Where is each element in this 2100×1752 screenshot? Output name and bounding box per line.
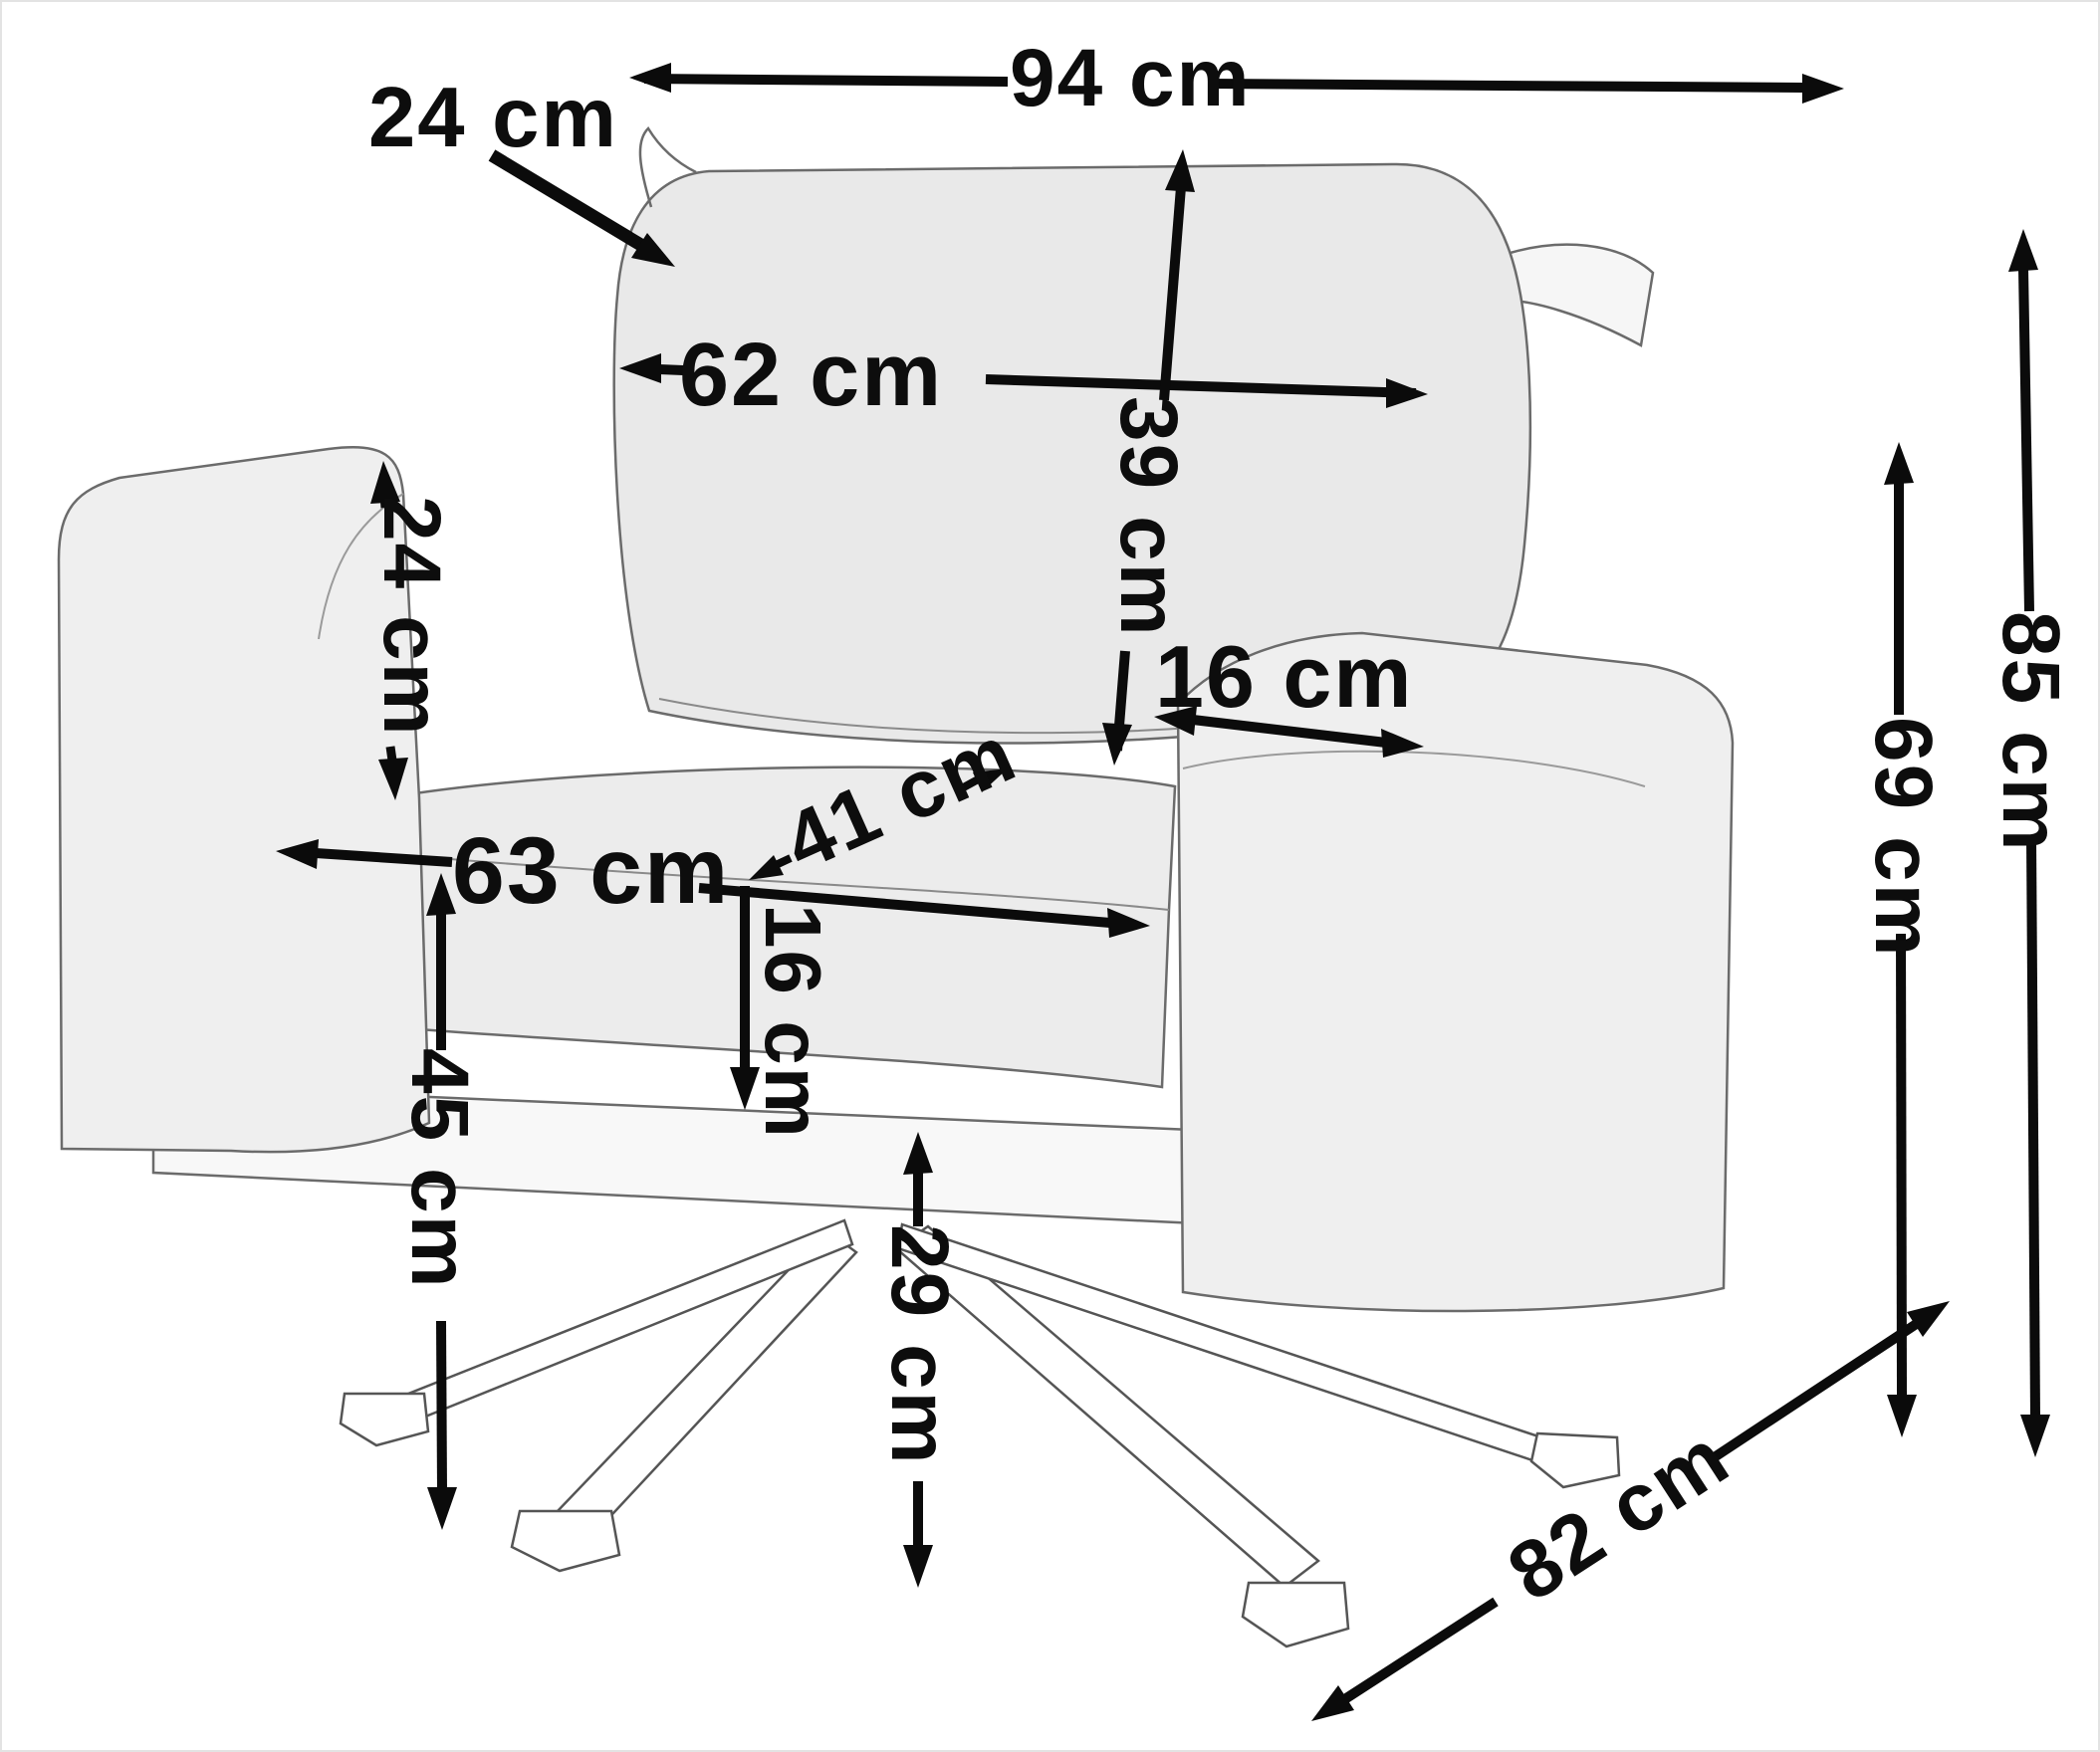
leg-foot [341, 1394, 428, 1445]
dim-armrest-width-label: 16 cm [1155, 633, 1414, 721]
dim-back-cushion-width-label: 62 cm [679, 330, 943, 420]
dimension-diagram: 94 cm 24 cm 62 cm 39 cm 16 cm 41 cm 24 c… [0, 0, 2100, 1752]
leg-foot [512, 1511, 619, 1571]
dim-overall-width-label: 94 cm [1010, 38, 1252, 119]
dim-back-cushion-depth-label: 24 cm [368, 76, 618, 160]
dim-overall-height-label: 85 cm [1989, 611, 2071, 853]
leg-foot [1243, 1583, 1348, 1646]
dim-seat-width-label: 63 cm [452, 824, 730, 919]
right-armrest [1178, 633, 1733, 1311]
dim-armrest-height-label: 69 cm [1862, 717, 1944, 959]
dim-underseat-clearance-label: 29 cm [878, 1224, 960, 1466]
dim-armrest-above-seat-label: 24 cm [370, 496, 452, 738]
dim-seat-cushion-height-label: 16 cm [753, 904, 832, 1140]
dim-seat-height-label: 45 cm [398, 1048, 480, 1290]
armchair-sketch-canvas [2, 2, 2098, 1750]
dim-back-cushion-height-label: 39 cm [1107, 396, 1189, 638]
